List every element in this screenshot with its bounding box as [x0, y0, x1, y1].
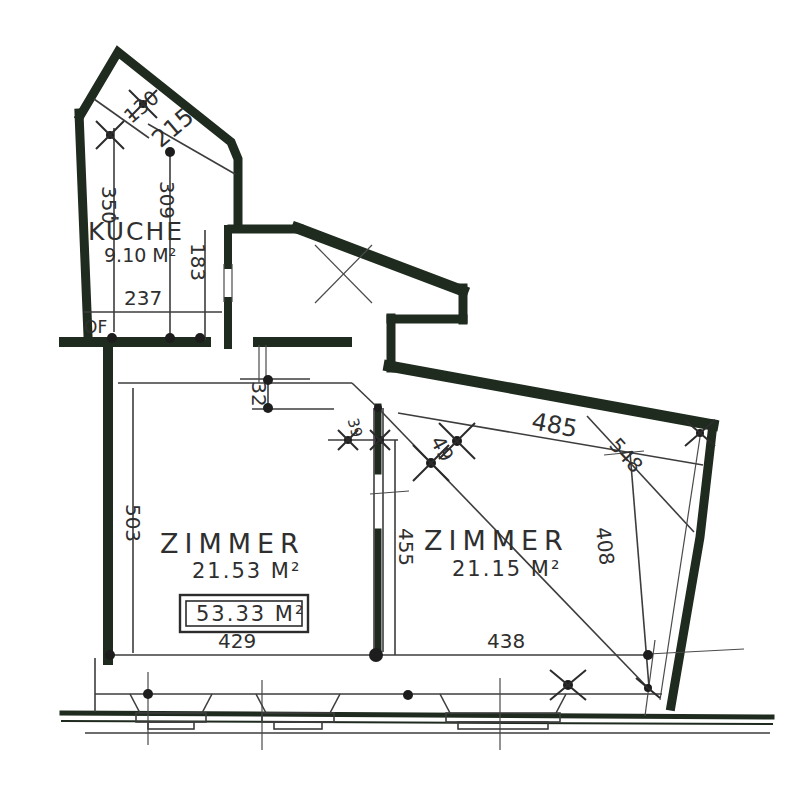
dim-32: 32: [247, 381, 271, 406]
room-label-zimmer1: ZIMMER: [160, 528, 305, 559]
room-area-zimmer2: 21.15 M²: [452, 557, 561, 581]
dim-39: 39: [344, 416, 366, 439]
room-area-kueche: 9.10 M²: [104, 244, 176, 266]
labels: KÜCHE 9.10 M² OF 130 215 350 309 183 237…: [84, 85, 648, 653]
dim-548: 548: [605, 433, 648, 477]
x-marker: [96, 121, 124, 149]
dim-350: 350: [97, 186, 121, 224]
dim-183: 183: [186, 243, 210, 281]
dim-309: 309: [155, 181, 179, 219]
annotation-of: OF: [84, 317, 107, 337]
dim-455: 455: [394, 528, 418, 566]
x-marker: [550, 670, 586, 700]
total-area-label: 53.33 M²: [196, 602, 305, 626]
floor-plan-drawing: KÜCHE 9.10 M² OF 130 215 350 309 183 237…: [0, 0, 800, 800]
dim-438: 438: [487, 629, 525, 653]
dim-429: 429: [218, 629, 256, 653]
room-area-zimmer1: 21.53 M²: [192, 559, 301, 583]
dim-485: 485: [529, 407, 579, 443]
dim-237: 237: [124, 286, 162, 310]
survey-markers: [96, 90, 715, 700]
room-label-zimmer2: ZIMMER: [424, 525, 569, 556]
floor-plan-page: KÜCHE 9.10 M² OF 130 215 350 309 183 237…: [0, 0, 800, 800]
dimension-lines: [84, 99, 770, 750]
dim-503: 503: [121, 504, 145, 542]
dim-408: 408: [591, 526, 619, 567]
